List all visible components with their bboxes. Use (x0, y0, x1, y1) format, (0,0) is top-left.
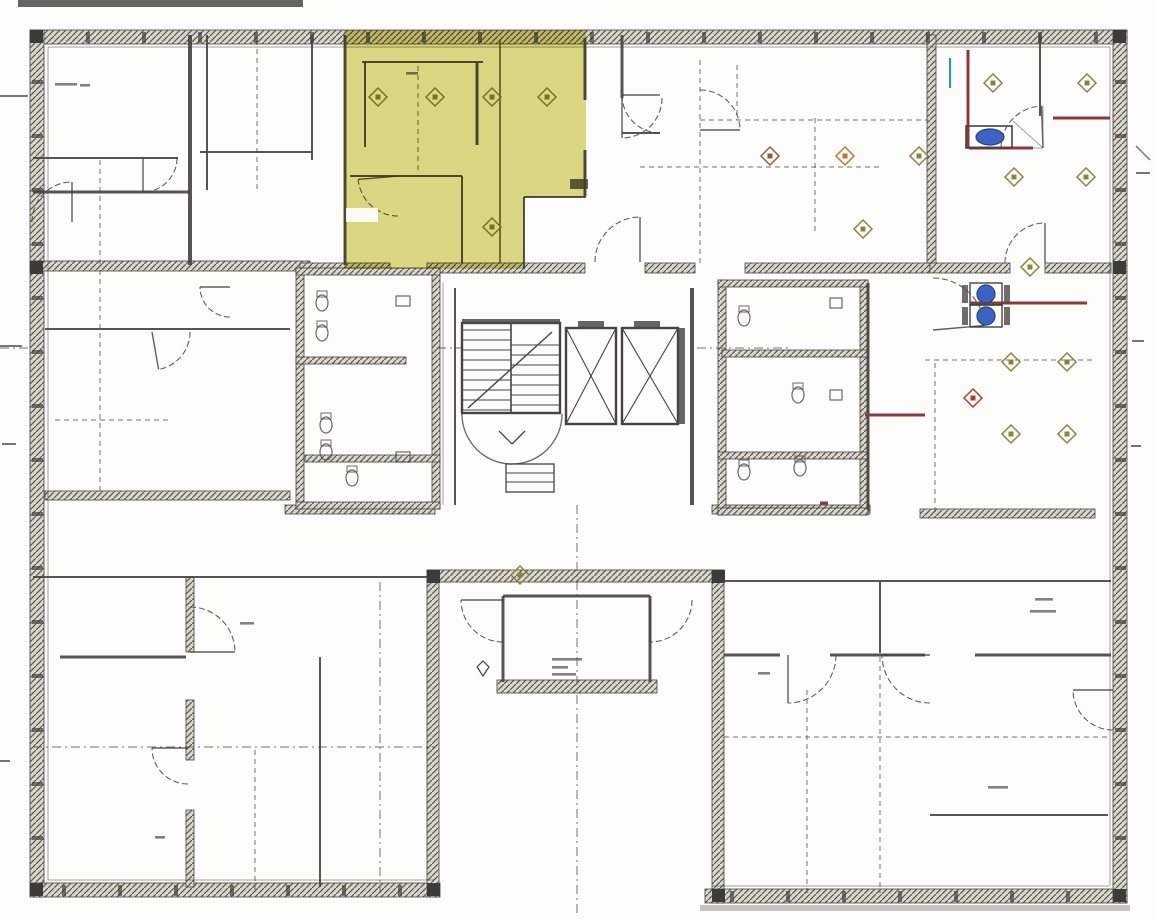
wall-segment (186, 577, 194, 652)
scan-artifact (1131, 445, 1141, 447)
door-swing-arc (1073, 690, 1113, 730)
window-tick (1066, 891, 1070, 902)
window-tick (1115, 458, 1126, 462)
window-tick (898, 891, 902, 902)
light-fixture-icon (1009, 360, 1014, 365)
window-tick (1115, 836, 1126, 840)
window-tick (32, 404, 43, 408)
light-fixture-icon (1084, 175, 1089, 180)
light-fixture-icon (1009, 432, 1014, 437)
wall-segment (920, 509, 1095, 518)
scan-artifact (700, 905, 1130, 911)
window-tick (1115, 566, 1126, 570)
window-tick (86, 32, 90, 43)
window-tick (286, 885, 290, 896)
door-leaf (152, 332, 159, 369)
blue-fixture-housing (1004, 307, 1010, 325)
light-fixture-icon (861, 227, 866, 232)
window-tick (1115, 782, 1126, 786)
door-swing-arc (650, 600, 692, 642)
wall-segment (305, 455, 440, 462)
wall-segment (186, 810, 194, 887)
window-tick (786, 891, 790, 902)
wall-segment (186, 700, 194, 760)
light-fixture-icon (518, 573, 523, 578)
wall-line (1013, 121, 1043, 148)
window-tick (32, 296, 43, 300)
plumbing-fixture (396, 296, 410, 306)
window-tick (730, 891, 734, 902)
wall-segment (427, 570, 724, 582)
wall-segment (296, 268, 440, 275)
illegible-label (988, 786, 1008, 789)
door-swing-arc (152, 748, 188, 784)
door-swing-arc (1005, 223, 1045, 263)
window-tick (702, 32, 706, 43)
door-swing-arc (595, 217, 640, 262)
wall-segment (427, 570, 439, 897)
window-tick (1115, 134, 1126, 138)
window-tick (1115, 188, 1126, 192)
wall-segment (718, 280, 868, 287)
window-tick (1094, 32, 1098, 43)
plumbing-fixture (830, 390, 842, 400)
wall-segment (930, 263, 1010, 273)
wall-segment (432, 268, 440, 509)
illegible-label (552, 666, 568, 669)
blue-fixture-icon (976, 129, 1004, 145)
window-tick (230, 885, 234, 896)
highlight-region (344, 30, 586, 269)
window-tick (198, 32, 202, 43)
light-fixture-icon (991, 81, 996, 86)
window-tick (842, 891, 846, 902)
window-tick (32, 782, 43, 786)
scan-artifact (1132, 340, 1144, 342)
legend-box (506, 464, 554, 492)
illegible-label (240, 622, 254, 625)
scan-artifact (0, 345, 22, 347)
wall-segment (30, 30, 44, 897)
window-tick (32, 80, 43, 84)
window-tick (32, 566, 43, 570)
blue-fixture-housing (962, 307, 968, 325)
door-swing-arc (143, 158, 177, 192)
scan-artifact (0, 95, 28, 97)
wall-segment (718, 280, 726, 515)
window-tick (62, 885, 66, 896)
window-tick (1010, 891, 1014, 902)
door-hardware (678, 328, 685, 424)
window-tick (32, 242, 43, 246)
door-swing-arc (700, 90, 740, 130)
door-swing-arc (461, 600, 503, 642)
floor-plan-scan (0, 0, 1157, 919)
wall-segment (1113, 30, 1127, 903)
door-swing-arc (788, 655, 836, 703)
corner-column (712, 889, 725, 902)
corner-column (30, 261, 43, 274)
window-tick (1115, 728, 1126, 732)
window-tick (590, 32, 594, 43)
light-fixture-icon (917, 154, 922, 159)
window-tick (1115, 404, 1126, 408)
window-tick (1115, 350, 1126, 354)
wall-segment (718, 452, 868, 459)
wall-segment (927, 35, 936, 263)
illegible-label (552, 673, 576, 676)
highlight-eraser-mark (346, 208, 378, 222)
wall-segment (1045, 263, 1111, 273)
light-fixture-icon (971, 396, 976, 401)
floor-plan-svg (0, 0, 1157, 919)
illegible-label (758, 672, 770, 675)
window-tick (1115, 296, 1126, 300)
door-swing-arc (622, 95, 660, 133)
wall-segment (296, 268, 304, 509)
scan-artifact (1136, 146, 1150, 160)
scan-artifact (18, 0, 303, 7)
stair-curve (462, 414, 562, 464)
corner-column (1113, 261, 1126, 274)
stair-arrow (499, 431, 512, 444)
illegible-label (155, 836, 165, 839)
door-swing-arc (200, 287, 230, 317)
light-fixture-icon (1012, 175, 1017, 180)
wall-segment (745, 263, 930, 273)
illegible-label (55, 83, 77, 86)
scan-artifact (1136, 172, 1150, 174)
window-tick (32, 350, 43, 354)
window-tick (32, 836, 43, 840)
corner-column (1113, 889, 1126, 902)
door-swing-arc (190, 607, 235, 652)
window-tick (870, 32, 874, 43)
wall-segment (722, 350, 868, 357)
blue-fixture-housing (1004, 285, 1010, 303)
window-tick (814, 32, 818, 43)
wall-segment (705, 889, 1127, 903)
illegible-label (552, 658, 582, 661)
blue-fixture-icon (977, 307, 995, 325)
wall-segment (296, 502, 440, 509)
door-swing-arc (882, 655, 930, 703)
window-tick (982, 32, 986, 43)
light-fixture-icon (843, 154, 848, 159)
light-fixture-icon (1028, 265, 1033, 270)
light-fixture-icon (1085, 81, 1090, 86)
corner-column (30, 30, 43, 43)
window-tick (32, 728, 43, 732)
light-fixture-icon (768, 154, 773, 159)
door-hardware (462, 319, 560, 324)
window-tick (118, 885, 122, 896)
blue-fixture-housing (962, 285, 968, 303)
corner-column (30, 883, 43, 896)
wall-segment (645, 263, 695, 273)
window-tick (954, 891, 958, 902)
corner-column (427, 883, 440, 896)
window-tick (32, 134, 43, 138)
plumbing-fixture (830, 298, 842, 308)
wall-segment (718, 508, 868, 515)
window-tick (1115, 80, 1126, 84)
window-tick (32, 458, 43, 462)
blue-fixture-icon (977, 285, 995, 303)
window-tick (1115, 620, 1126, 624)
light-fixture-icon (1065, 432, 1070, 437)
scan-artifact (0, 760, 10, 762)
window-tick (926, 32, 930, 43)
illegible-label (1035, 598, 1053, 601)
corner-column (712, 570, 725, 583)
illegible-label (1030, 610, 1056, 613)
window-tick (32, 512, 43, 516)
window-tick (142, 32, 146, 43)
window-tick (1115, 242, 1126, 246)
wall-segment (30, 883, 440, 897)
light-fixture-icon (1065, 360, 1070, 365)
door-swing-arc (159, 332, 190, 369)
wall-segment (30, 261, 310, 271)
window-tick (32, 674, 43, 678)
stair-arrow (512, 431, 525, 444)
door-hardware (634, 321, 660, 329)
window-tick (646, 32, 650, 43)
wall-segment (712, 570, 724, 903)
window-tick (758, 32, 762, 43)
illegible-label (80, 84, 90, 87)
door-leaf (933, 325, 985, 330)
wall-segment (296, 357, 406, 364)
wall-segment (45, 491, 290, 500)
scan-artifact (2, 443, 16, 445)
door-hardware (578, 321, 604, 329)
window-tick (174, 885, 178, 896)
corner-column (1113, 30, 1126, 43)
window-tick (1115, 512, 1126, 516)
window-tick (342, 885, 346, 896)
window-tick (398, 885, 402, 896)
window-tick (1115, 674, 1126, 678)
corner-column (427, 570, 440, 583)
window-tick (32, 620, 43, 624)
small-plan-mark (477, 661, 489, 676)
